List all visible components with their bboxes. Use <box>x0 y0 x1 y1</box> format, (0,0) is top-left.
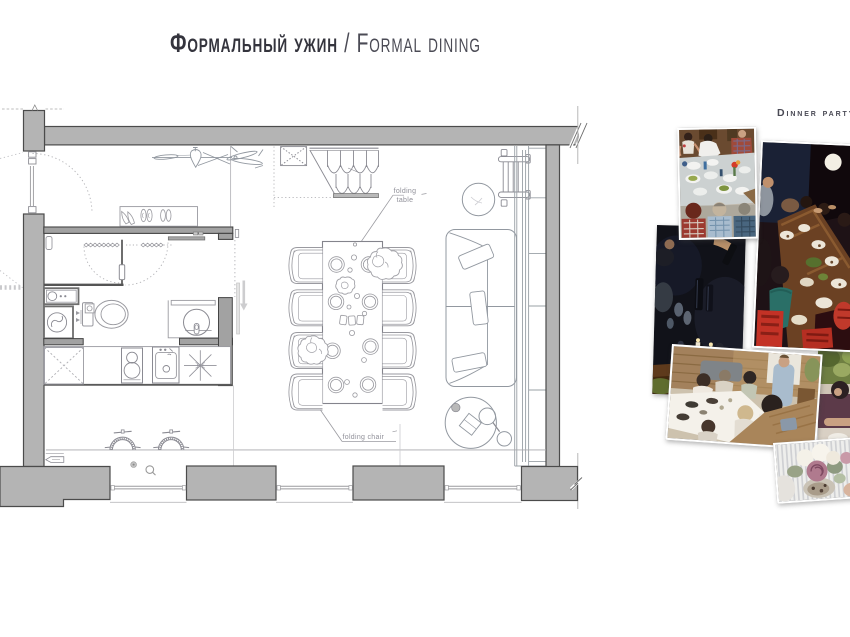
svg-text:folding: folding <box>394 188 417 195</box>
svg-text:folding chair: folding chair <box>343 434 385 441</box>
svg-text:table: table <box>397 197 414 204</box>
